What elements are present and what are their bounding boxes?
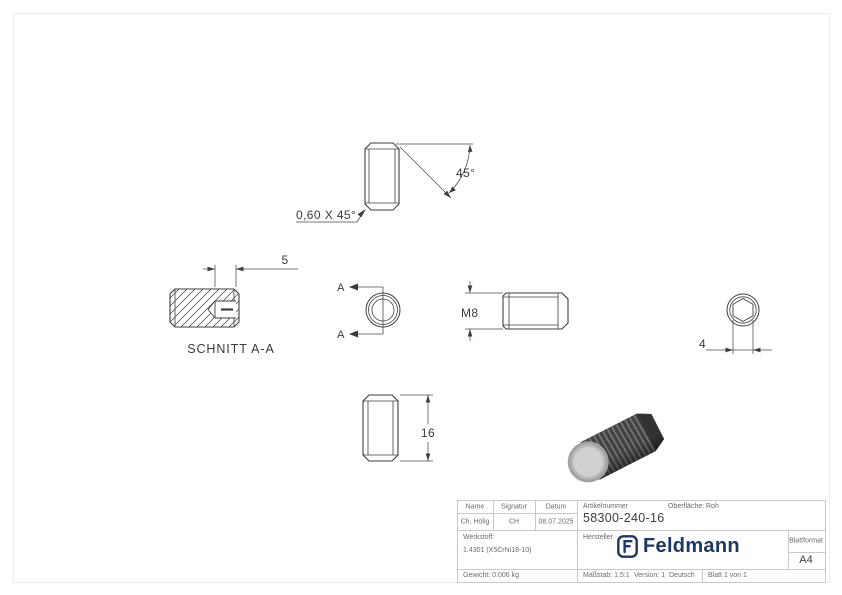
feldmann-logo: Feldmann: [617, 535, 740, 558]
socket-depth-label: 5: [281, 253, 288, 267]
view-side: M8: [461, 281, 568, 341]
page: { "page": { "background": "#ffffff", "fr…: [0, 0, 842, 595]
view-section-indicator: A A: [337, 282, 400, 341]
manufacturer-label: Hersteller: [583, 534, 613, 541]
surface-value: Roh: [706, 503, 719, 510]
view-hex-end: 4: [699, 294, 772, 354]
sheet-format-label: Blattformat: [789, 538, 823, 545]
signature-label: Signatur: [501, 504, 527, 511]
weight-value: Gewicht: 0.006 kg: [463, 572, 519, 579]
material-label: Werkstoff:: [463, 534, 494, 541]
tb-border: [457, 500, 825, 501]
article-number-value: 58300-240-16: [583, 511, 664, 525]
name-value: Ch. Hölig: [461, 519, 490, 526]
date-label: Datum: [546, 504, 567, 511]
feldmann-logo-icon: [617, 535, 638, 558]
view-bottom: 16: [363, 395, 435, 461]
tb-border: [493, 500, 494, 530]
tb-border: [788, 552, 825, 553]
tb-border: [457, 530, 825, 531]
scale-value: Maßstab: 1,5:1: [583, 572, 630, 579]
name-label: Name: [466, 504, 485, 511]
material-value: 1.4301 (X5CrNi18-10): [463, 547, 531, 554]
view-section: 5 SCHNITT A-A: [128, 253, 298, 356]
tb-border: [702, 569, 703, 582]
hex-socket-outline: [733, 299, 753, 322]
section-marker-bottom: A: [337, 329, 345, 341]
tb-border: [535, 500, 536, 530]
section-title: SCHNITT A-A: [187, 342, 274, 356]
sheet-format-value: A4: [799, 554, 812, 566]
version-value: Version: 1: [634, 572, 665, 579]
tb-border: [457, 582, 825, 583]
angle-dimension-label: 45°: [456, 166, 475, 180]
article-number-label: Artikelnummer: [583, 503, 628, 510]
date-value: 08.07.2025: [538, 519, 573, 526]
tb-border: [457, 500, 458, 582]
screw-3d-render: [560, 408, 667, 490]
tb-border: [577, 500, 578, 582]
sheet-count-value: Blatt 1 von 1: [708, 572, 747, 579]
tb-border: [457, 513, 577, 514]
language-value: Deutsch: [669, 572, 695, 579]
title-block: Name Signatur Datum Ch. Hölig CH 08.07.2…: [457, 500, 825, 582]
view-front: 45° 0,60 X 45°: [296, 143, 475, 222]
signature-value: CH: [509, 519, 519, 526]
tb-border: [788, 530, 789, 569]
length-dimension-label: 16: [421, 426, 435, 440]
surface-label: Oberfläche:: [668, 503, 704, 510]
section-marker-top: A: [337, 282, 345, 294]
brand-wordmark: Feldmann: [643, 535, 740, 558]
hex-width-label: 4: [699, 337, 706, 351]
tb-border: [457, 569, 825, 570]
thread-dimension-label: M8: [461, 306, 478, 320]
tb-border: [825, 500, 826, 582]
chamfer-note-label: 0,60 X 45°: [296, 208, 356, 222]
